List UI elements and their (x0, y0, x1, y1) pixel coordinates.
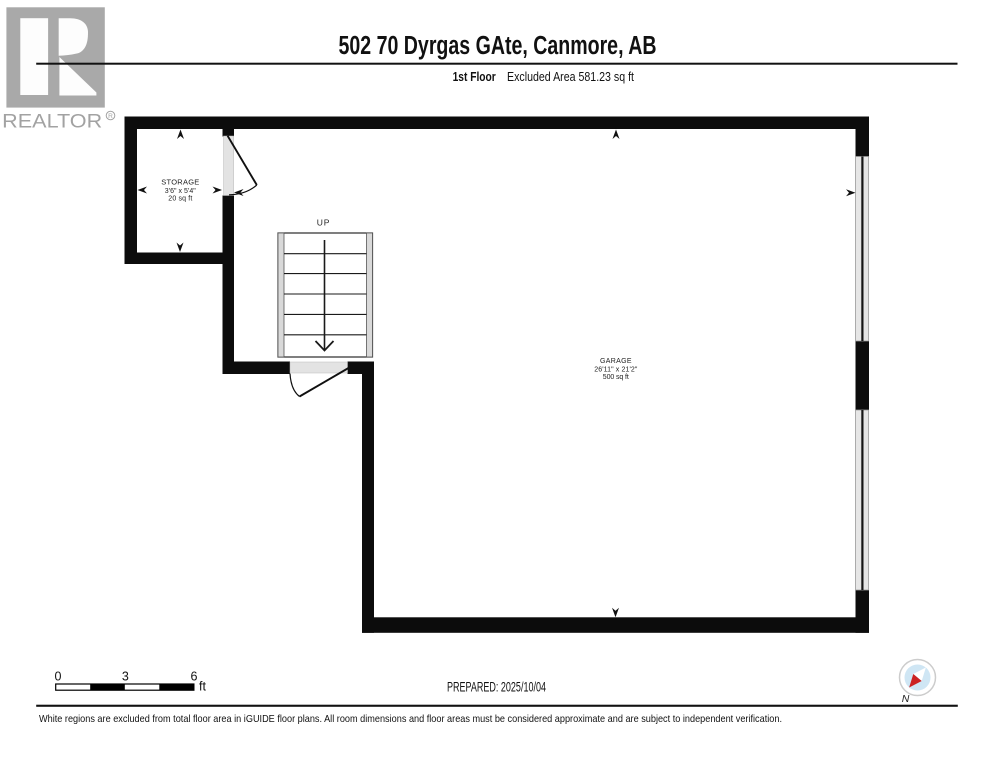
svg-text:GARAGE: GARAGE (600, 358, 632, 365)
svg-text:UP: UP (317, 218, 330, 228)
svg-text:3: 3 (122, 670, 129, 684)
svg-text:20 sq ft: 20 sq ft (168, 196, 192, 203)
svg-text:26'11" x 21'2": 26'11" x 21'2" (594, 367, 638, 374)
svg-text:PREPARED: 2025/10/04: PREPARED: 2025/10/04 (447, 680, 546, 695)
svg-text:ft: ft (199, 680, 206, 694)
svg-text:STORAGE: STORAGE (161, 178, 199, 187)
svg-text:502 70 Dyrgas GAte, Canmore, A: 502 70 Dyrgas GAte, Canmore, AB (339, 32, 657, 60)
svg-text:N: N (902, 693, 910, 705)
svg-text:500 sq ft: 500 sq ft (603, 374, 629, 381)
svg-text:White regions are excluded fro: White regions are excluded from total fl… (39, 713, 782, 725)
svg-text:R: R (108, 113, 113, 120)
svg-text:REALTOR: REALTOR (2, 112, 102, 133)
svg-text:Excluded Area 581.23 sq ft: Excluded Area 581.23 sq ft (507, 69, 634, 84)
svg-text:1st Floor: 1st Floor (453, 69, 496, 84)
svg-text:6: 6 (191, 670, 198, 684)
svg-text:0: 0 (55, 670, 62, 684)
svg-text:3'6" x 5'4": 3'6" x 5'4" (165, 188, 197, 195)
